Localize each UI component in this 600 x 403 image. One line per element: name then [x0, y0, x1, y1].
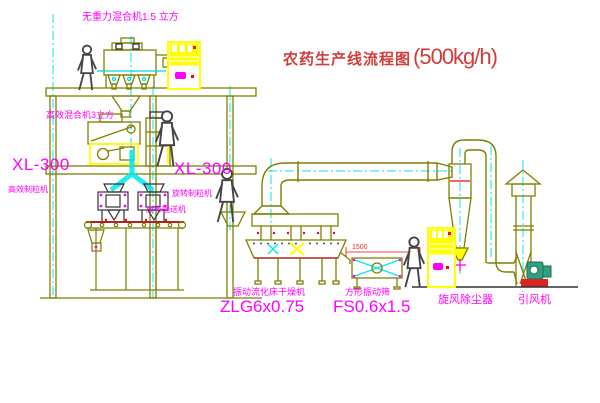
label-granulator-mid-name: 旋转制粒机	[172, 190, 212, 198]
label-top-mixer: 无重力混合机1.5 立方	[82, 13, 179, 23]
label-belt-conveyor: 皮带输送机	[146, 206, 186, 214]
diagram-canvas: 农药生产线流程图 (500kg/h) 无重力混合机1.5 立方 高效混合机3立方…	[0, 0, 600, 403]
label-cyclone: 旋风除尘器	[438, 295, 493, 306]
label-dryer-name: 振动流化床干燥机	[233, 288, 305, 297]
control-cabinet-upper	[168, 42, 200, 89]
title-text: 农药生产线流程图	[283, 48, 411, 69]
label-fan: 引风机	[518, 295, 551, 306]
page-title: 农药生产线流程图 (500kg/h)	[283, 44, 497, 70]
label-granulator-left-name: 高效制粒机	[8, 186, 48, 194]
label-dryer-model: ZLG6x0.75	[220, 298, 304, 315]
label-sieve-model: FS0.6x1.5	[333, 298, 411, 315]
control-cabinet-lower	[428, 228, 455, 287]
title-capacity: (500kg/h)	[413, 44, 497, 70]
label-sieve-name: 方形振动筛	[345, 288, 390, 297]
label-granulator-mid-model: XL-300	[174, 160, 232, 177]
label-granulator-left-model: XL-300	[12, 156, 70, 173]
label-dimension-1500: 1500	[352, 244, 368, 251]
label-second-floor-mixer: 高效混合机3立方	[46, 111, 114, 120]
